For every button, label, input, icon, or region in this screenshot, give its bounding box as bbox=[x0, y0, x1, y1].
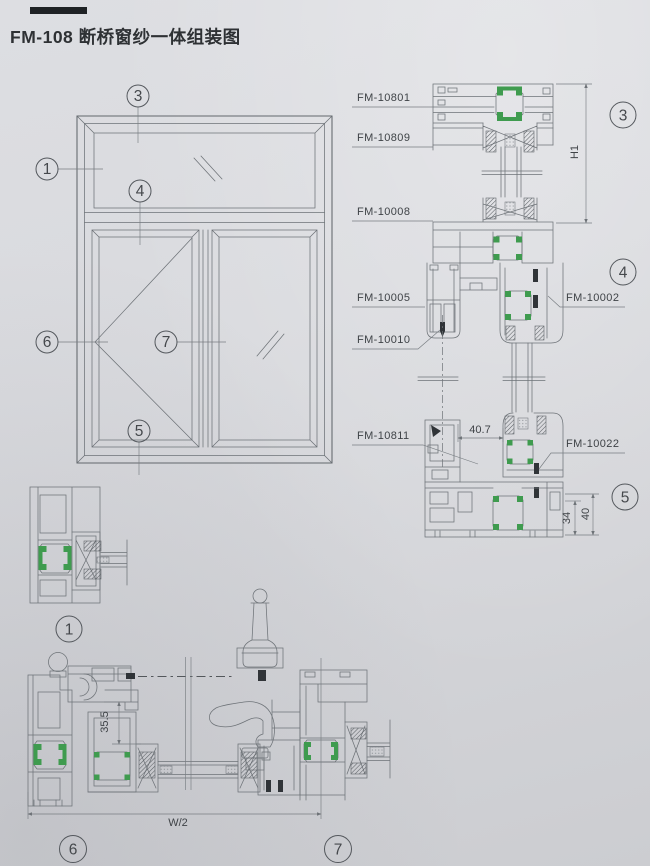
callout-6-section: 6 bbox=[60, 836, 87, 863]
opening-direction-mark bbox=[95, 238, 192, 440]
glass-symbol-top bbox=[194, 156, 222, 181]
frame-outer bbox=[77, 116, 332, 463]
glazing-gasket bbox=[524, 198, 534, 219]
thermal-strips bbox=[39, 546, 72, 570]
part-number: FM-10809 bbox=[357, 132, 410, 144]
part-label-fm10005: FM-10005 bbox=[352, 292, 425, 307]
callout-number: 4 bbox=[136, 183, 145, 200]
part-label-fm10022: FM-10022 bbox=[539, 438, 625, 469]
bottom-sash-profile bbox=[425, 413, 563, 498]
callout-number: 7 bbox=[334, 842, 343, 859]
screw bbox=[533, 295, 538, 308]
callout-3-section: 3 bbox=[610, 102, 636, 128]
break-line bbox=[482, 171, 542, 175]
right-fixed-pane bbox=[212, 230, 317, 447]
part-number: FM-10801 bbox=[357, 92, 410, 104]
screw bbox=[533, 269, 538, 282]
glass-spacer bbox=[160, 766, 172, 774]
callout-number: 3 bbox=[619, 108, 628, 125]
screw bbox=[278, 780, 283, 792]
dim-40-7: 40.7 bbox=[458, 424, 503, 442]
callout-number: 5 bbox=[621, 490, 630, 507]
part-label-fm10801: FM-10801 bbox=[352, 92, 433, 107]
handle-knob bbox=[253, 589, 267, 603]
callout-4-section: 4 bbox=[610, 259, 636, 285]
dim-label: H1 bbox=[569, 145, 581, 159]
screw bbox=[534, 463, 539, 474]
top-fixed-pane bbox=[85, 124, 325, 209]
part-number: FM-10811 bbox=[357, 430, 410, 442]
callout-1-detail: 1 bbox=[56, 616, 82, 642]
callout-5-section: 5 bbox=[612, 484, 638, 510]
head-frame-profile bbox=[433, 84, 553, 152]
glazing-gasket bbox=[84, 541, 101, 551]
glazing-gasket bbox=[524, 131, 534, 152]
transom bbox=[85, 213, 325, 223]
glazing-gasket bbox=[535, 326, 544, 340]
glazing-gasket bbox=[486, 198, 496, 219]
callout-number: 5 bbox=[135, 423, 144, 440]
frame-inner bbox=[85, 124, 325, 456]
glass-spacer bbox=[226, 766, 238, 774]
callout-6-elevation: 6 bbox=[36, 331, 108, 353]
glass-spacer bbox=[505, 134, 515, 147]
dim-label: 40.7 bbox=[469, 424, 490, 436]
thermal-strip-bottom bbox=[497, 112, 522, 121]
glass-spacer bbox=[518, 418, 528, 429]
screw bbox=[431, 425, 441, 437]
section-4-profiles bbox=[427, 263, 563, 467]
break-line bbox=[418, 377, 545, 381]
glazing-gasket bbox=[351, 763, 366, 774]
mullion bbox=[203, 230, 208, 447]
thermal-strip-top bbox=[497, 87, 522, 96]
callout-number: 6 bbox=[69, 842, 78, 859]
casement-sash bbox=[92, 230, 199, 447]
part-label-fm10002: FM-10002 bbox=[548, 292, 625, 307]
callout-number: 7 bbox=[162, 334, 171, 351]
dim-34: 34 bbox=[561, 501, 581, 535]
thermal-corners bbox=[493, 496, 523, 530]
vertical-section: H1 40.7 34 40 FM-10801 bbox=[352, 84, 638, 537]
part-label-fm10010: FM-10010 bbox=[352, 330, 440, 349]
part-number: FM-10022 bbox=[566, 438, 619, 450]
window-elevation: 3 1 4 6 7 bbox=[36, 85, 332, 475]
glazing-gasket bbox=[241, 752, 257, 778]
screw bbox=[534, 487, 539, 498]
part-number: FM-10008 bbox=[357, 206, 410, 218]
part-label-fm10008: FM-10008 bbox=[352, 206, 433, 221]
glazing-gasket bbox=[506, 326, 515, 340]
thermal-corners bbox=[505, 291, 531, 320]
thermal-corners bbox=[494, 237, 523, 261]
part-label-fm10809: FM-10809 bbox=[352, 132, 433, 147]
glass-spacer bbox=[97, 557, 109, 563]
glazing-gasket bbox=[486, 131, 496, 152]
callout-7-section: 7 bbox=[325, 836, 352, 863]
thermal-corners bbox=[94, 752, 130, 780]
callout-1-elevation: 1 bbox=[36, 158, 103, 180]
callout-7-elevation: 7 bbox=[155, 331, 226, 353]
glazing-gasket bbox=[139, 752, 155, 778]
detail-section-1: 1 bbox=[30, 487, 127, 642]
dim-label: 40 bbox=[580, 508, 592, 520]
sill-frame-profile bbox=[425, 482, 563, 537]
technical-drawing: 3 1 4 6 7 bbox=[0, 0, 650, 866]
glazing-gasket bbox=[84, 569, 101, 579]
screw bbox=[266, 780, 271, 792]
hinge-base bbox=[50, 671, 66, 677]
dim-label: 34 bbox=[561, 512, 573, 524]
dim-h1: H1 bbox=[556, 84, 592, 223]
hinge-knuckle bbox=[49, 653, 68, 672]
part-number: FM-10010 bbox=[357, 334, 410, 346]
glass-symbol-right bbox=[257, 331, 284, 359]
callout-number: 1 bbox=[43, 161, 52, 178]
callout-number: 1 bbox=[65, 622, 74, 639]
callout-5-elevation: 5 bbox=[128, 420, 150, 475]
part-number: FM-10002 bbox=[566, 292, 619, 304]
part-label-fm10811: FM-10811 bbox=[352, 430, 478, 464]
callout-number: 3 bbox=[134, 88, 143, 105]
screw bbox=[126, 673, 135, 679]
left-jamb-profile bbox=[28, 653, 72, 807]
window-handle bbox=[209, 589, 283, 770]
dim-label: 35.5 bbox=[99, 711, 111, 732]
upper-glass-unit bbox=[501, 147, 521, 197]
dim-label: W/2 bbox=[168, 817, 188, 829]
mullion-profile bbox=[300, 670, 390, 800]
frame-mitres bbox=[77, 116, 332, 463]
dim-35-5: 35.5 bbox=[99, 702, 141, 744]
callout-3-elevation: 3 bbox=[127, 85, 149, 143]
lower-glass-unit bbox=[512, 343, 532, 412]
drawing-sheet: FM-108 断桥窗纱一体组装图 bbox=[0, 0, 650, 866]
callout-number: 4 bbox=[619, 265, 628, 282]
thermal-corners bbox=[507, 440, 533, 464]
transom-profile bbox=[433, 198, 553, 263]
lock-stile-profile bbox=[258, 700, 300, 795]
glass-spacer bbox=[370, 747, 384, 756]
thermal-strips bbox=[34, 744, 67, 765]
callout-number: 6 bbox=[43, 334, 52, 351]
glazing-gasket bbox=[351, 728, 366, 739]
glazing-gasket bbox=[537, 416, 546, 434]
part-number: FM-10005 bbox=[357, 292, 410, 304]
lock-body bbox=[258, 670, 266, 681]
hinge-stay bbox=[68, 666, 232, 710]
glazing-gasket bbox=[505, 416, 514, 434]
